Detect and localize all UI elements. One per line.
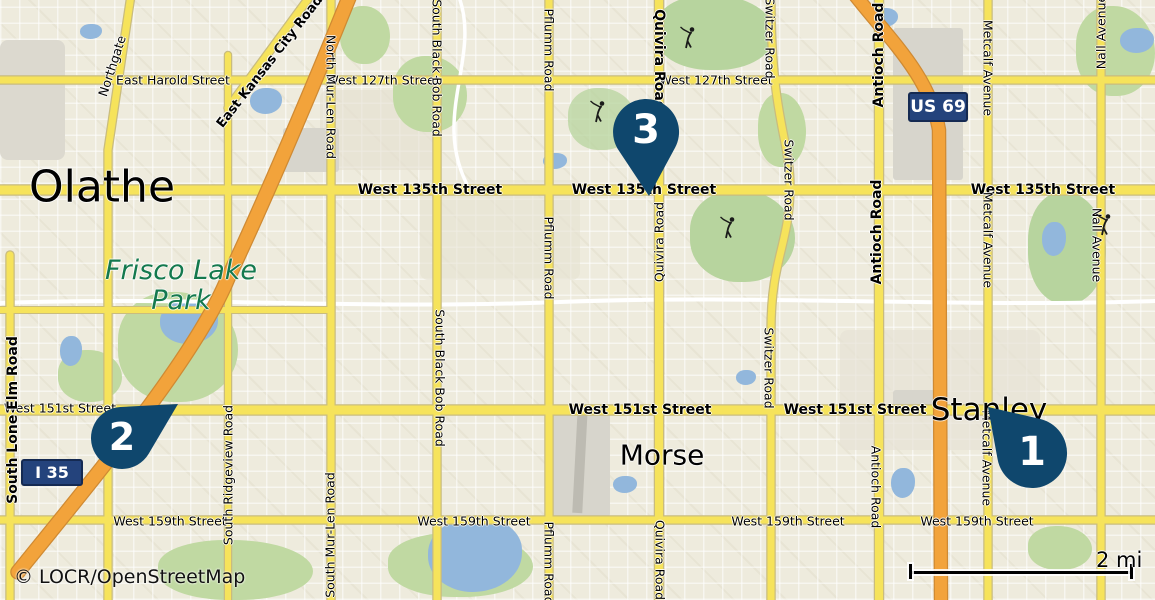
marker-layer (0, 0, 1155, 600)
marker-number-2[interactable]: 2 (109, 415, 135, 459)
marker-number-3[interactable]: 3 (632, 107, 660, 153)
map-canvas[interactable]: Northgate East Harold Street East Kansas… (0, 0, 1155, 600)
marker-number-1[interactable]: 1 (1018, 429, 1046, 475)
